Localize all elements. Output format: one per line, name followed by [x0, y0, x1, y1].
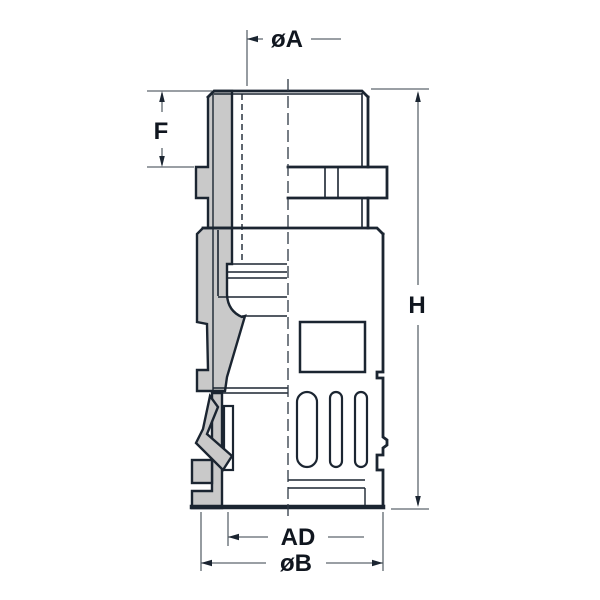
vent-slot [297, 392, 317, 467]
neck-section [196, 91, 232, 228]
vent-slot [355, 392, 367, 467]
section-fill [192, 91, 245, 508]
hex-flange-facets [325, 167, 338, 198]
body-window [300, 322, 365, 372]
dia-a-label: øA [271, 26, 303, 53]
dia-b-label: øB [280, 550, 312, 577]
skirt-groove-lines [288, 480, 365, 507]
dimension-h: H [371, 89, 429, 509]
body-right-wall [377, 234, 387, 507]
h-label: H [408, 292, 425, 319]
dimension-dia-a: øA [247, 26, 341, 86]
vent-slots [297, 392, 367, 467]
dimension-ad: AD [228, 512, 364, 551]
skirt-lug-section [192, 460, 212, 483]
body-section [197, 228, 245, 391]
technical-drawing: øA F H AD øB [0, 0, 600, 600]
vent-slot [330, 392, 342, 467]
f-label: F [154, 118, 169, 145]
exterior-features [297, 322, 367, 467]
ad-label: AD [281, 524, 316, 551]
dimension-f: F [147, 91, 212, 167]
